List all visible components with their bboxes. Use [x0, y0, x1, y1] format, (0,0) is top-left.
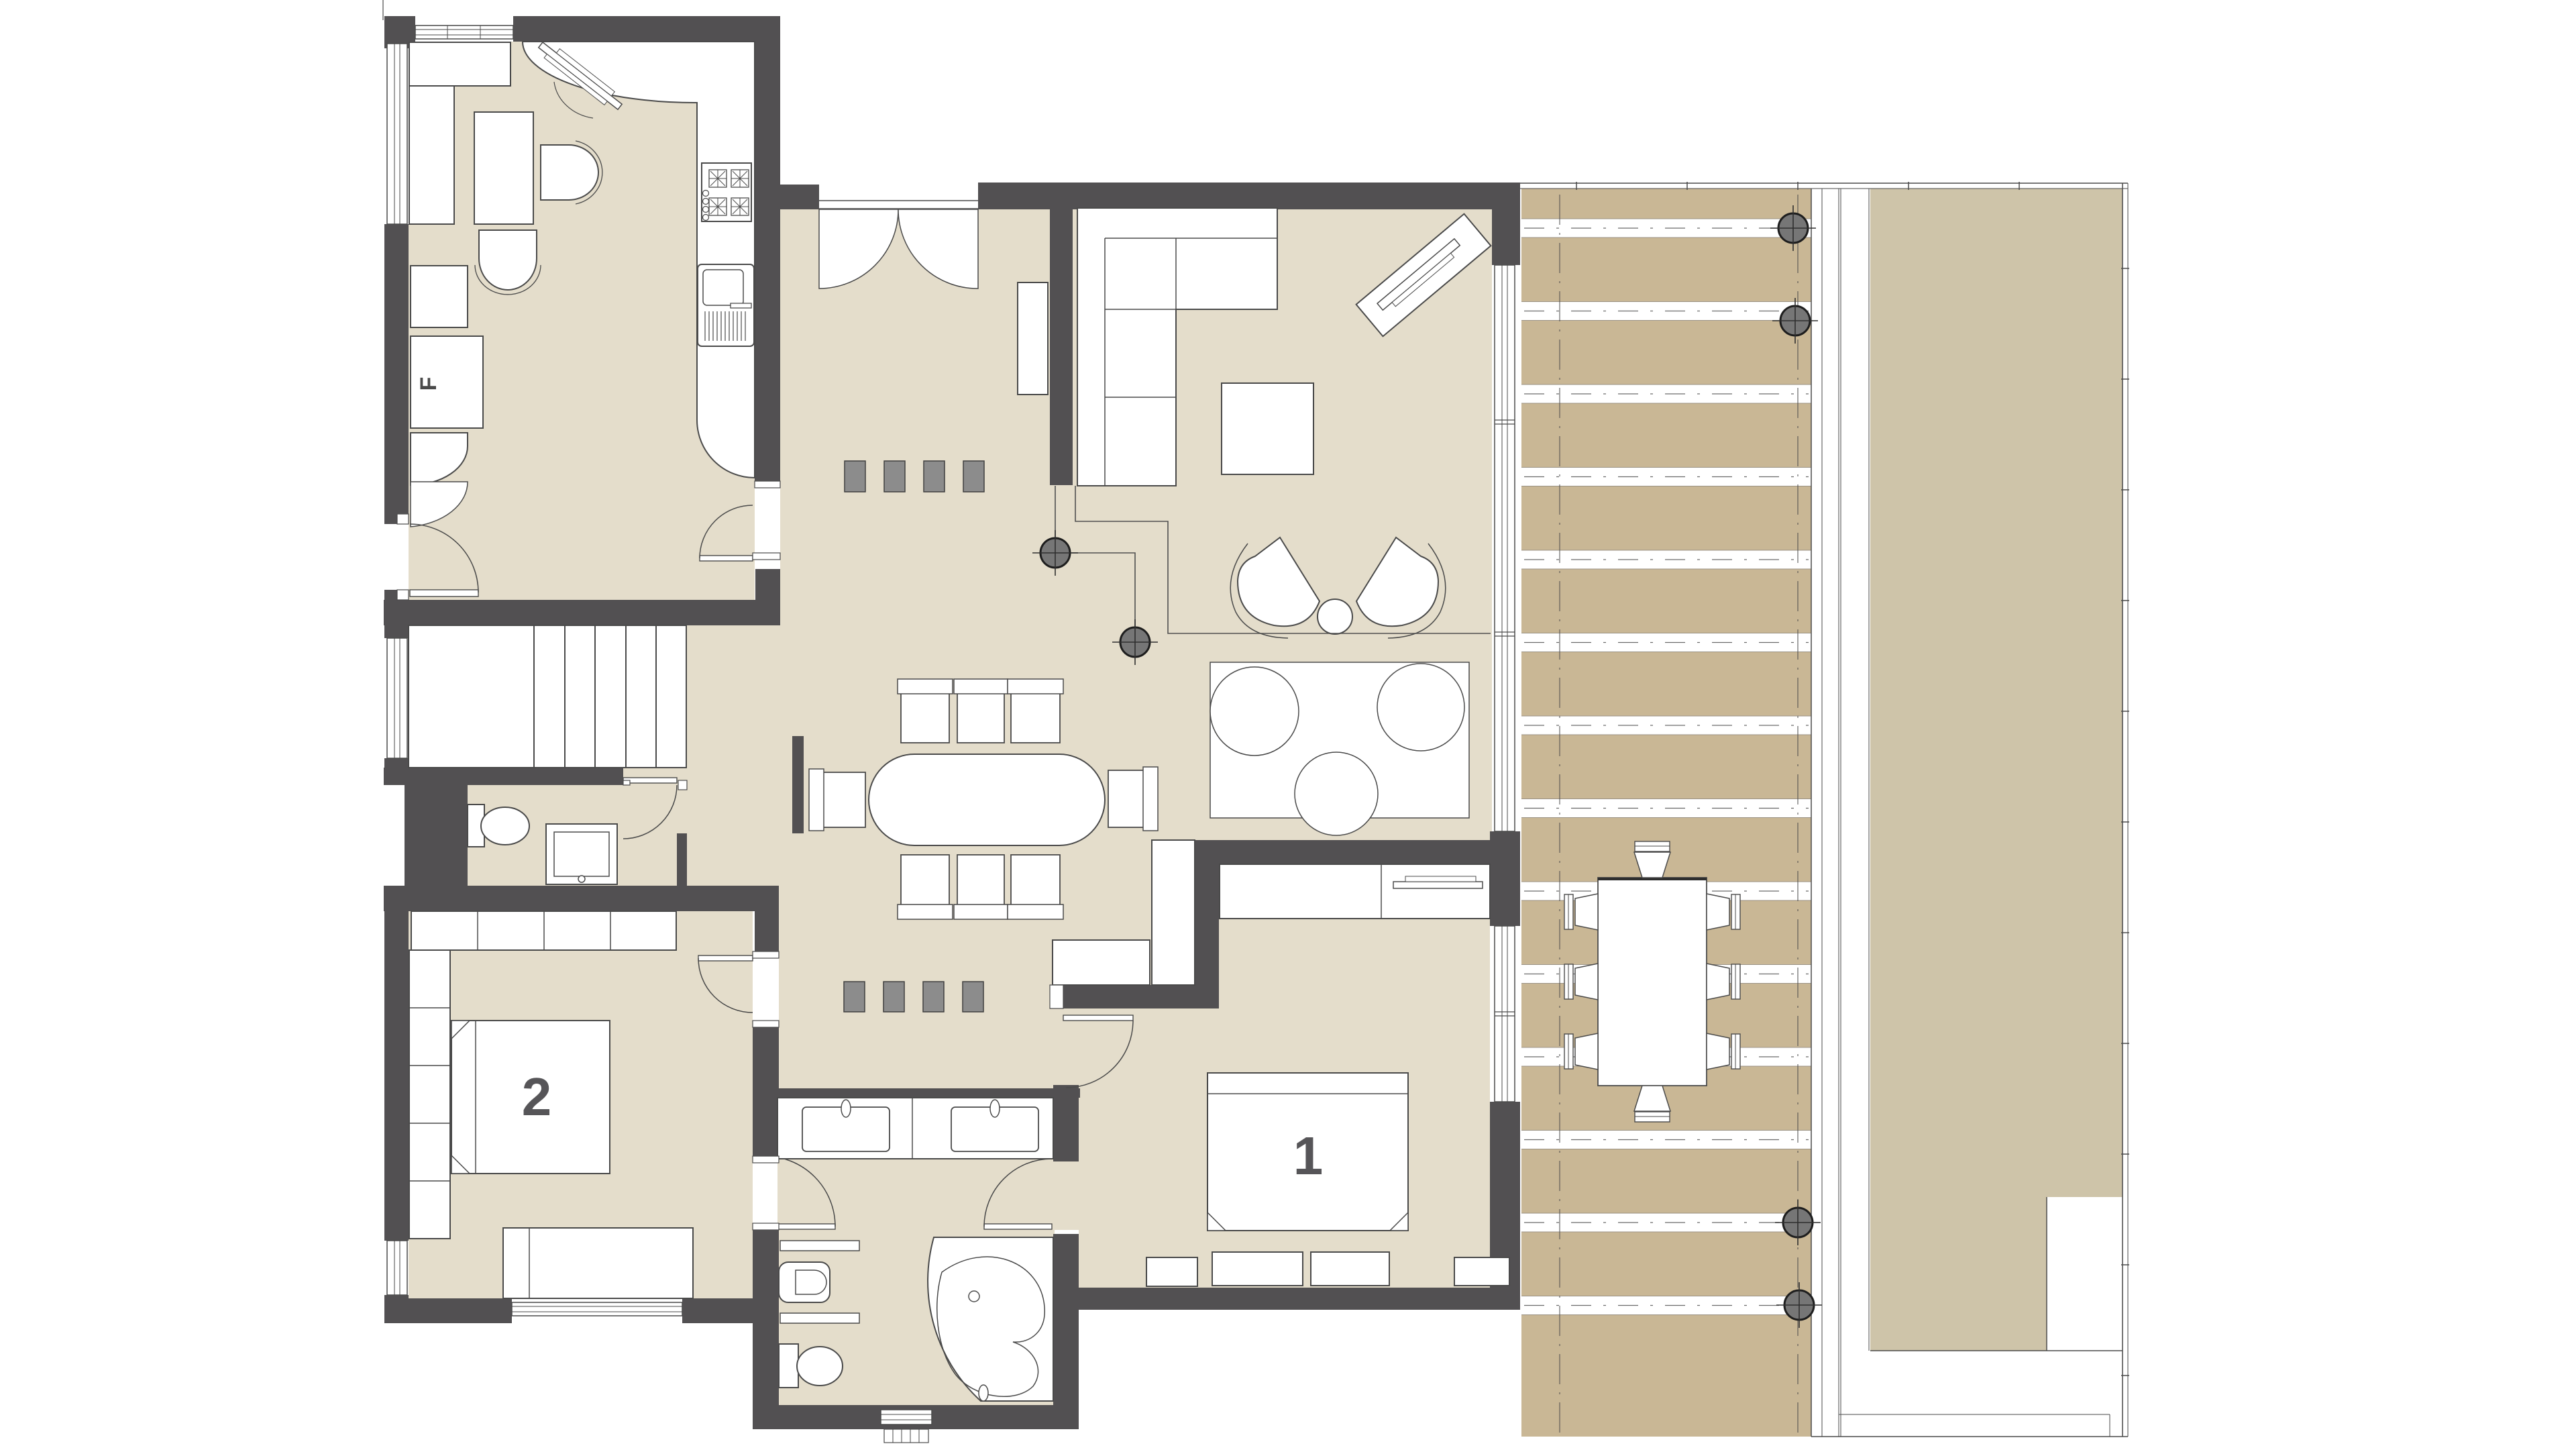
- svg-text:2: 2: [522, 1067, 552, 1127]
- svg-text:1: 1: [1293, 1126, 1324, 1186]
- svg-text:F: F: [416, 377, 441, 391]
